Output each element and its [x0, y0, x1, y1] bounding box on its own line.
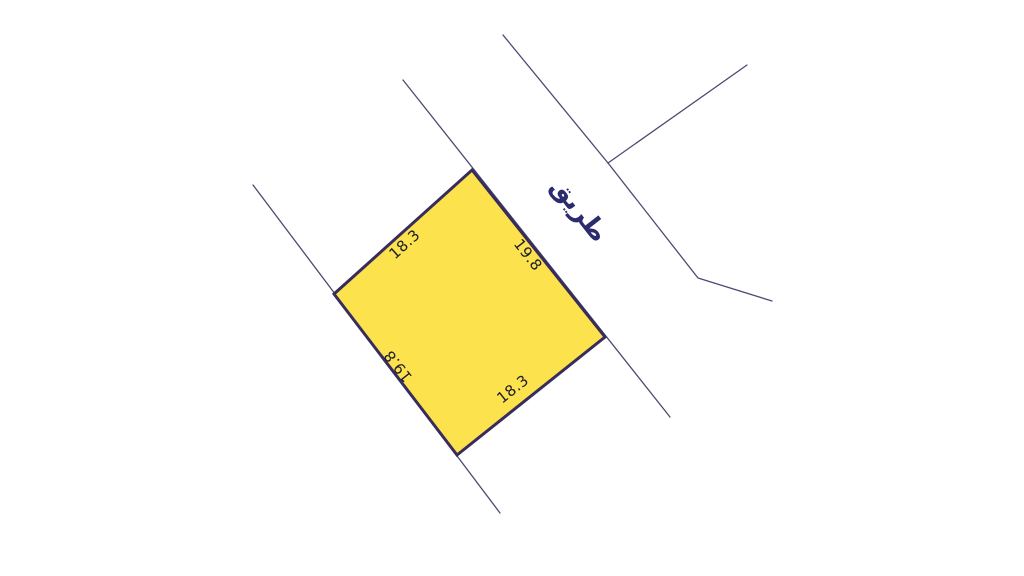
road-boundary-line	[608, 65, 747, 163]
road-name-label: طريق	[545, 172, 614, 249]
survey-drawing: 18.319.818.319.8طريق	[0, 0, 1024, 576]
cadastral-map: 18.319.818.319.8طريق	[0, 0, 1024, 576]
